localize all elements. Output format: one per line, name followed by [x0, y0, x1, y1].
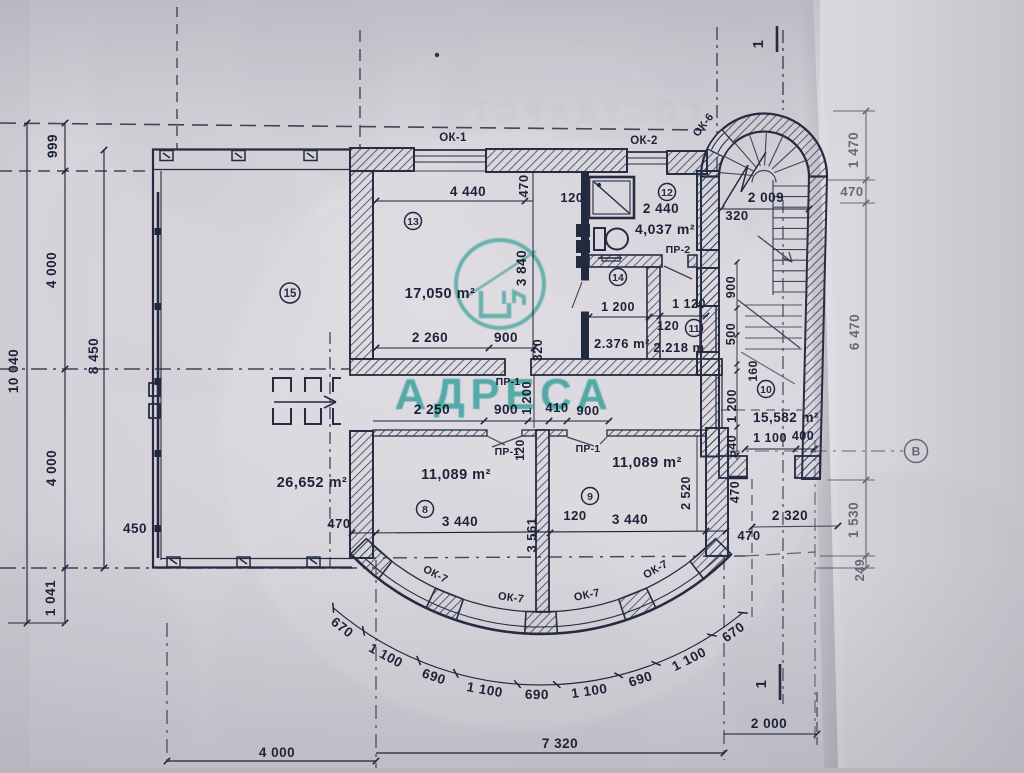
svg-text:120: 120 — [563, 508, 586, 523]
svg-text:470: 470 — [840, 184, 863, 199]
svg-text:11: 11 — [688, 323, 699, 335]
svg-text:320: 320 — [725, 208, 748, 223]
svg-text:4 000: 4 000 — [44, 252, 59, 288]
svg-text:1 470: 1 470 — [846, 132, 861, 168]
svg-text:3 440: 3 440 — [612, 512, 648, 527]
svg-text:1 200: 1 200 — [601, 300, 635, 314]
svg-text:249: 249 — [853, 559, 867, 581]
svg-text:2 440: 2 440 — [643, 201, 679, 216]
svg-text:470: 470 — [516, 174, 531, 197]
svg-text:7 320: 7 320 — [542, 736, 578, 751]
svg-text:2 260: 2 260 — [412, 330, 448, 345]
svg-text:8 450: 8 450 — [86, 338, 101, 374]
svg-text:9: 9 — [587, 491, 593, 503]
svg-text:470: 470 — [327, 516, 350, 531]
svg-text:120: 120 — [657, 319, 679, 333]
svg-text:500: 500 — [724, 323, 738, 345]
svg-text:26,652 m²: 26,652 m² — [277, 475, 348, 491]
svg-text:1 100: 1 100 — [753, 431, 787, 445]
svg-text:14: 14 — [612, 272, 624, 284]
svg-text:10: 10 — [760, 384, 772, 396]
svg-text:15,582 m²: 15,582 m² — [753, 410, 819, 425]
svg-text:470: 470 — [728, 481, 742, 503]
svg-text:ГОСУДАРСТ: ГОСУДАРСТ — [466, 96, 700, 129]
svg-text:120: 120 — [513, 439, 527, 461]
svg-text:2.376 m²: 2.376 m² — [594, 336, 650, 351]
svg-text:999: 999 — [45, 134, 60, 158]
svg-text:11,089 m²: 11,089 m² — [421, 467, 491, 483]
svg-text:470: 470 — [737, 528, 760, 543]
svg-text:3 840: 3 840 — [514, 250, 529, 286]
svg-text:120: 120 — [560, 190, 583, 205]
svg-text:3 561: 3 561 — [524, 517, 539, 552]
svg-text:15: 15 — [284, 288, 297, 300]
svg-text:6 470: 6 470 — [847, 314, 862, 350]
svg-text:400: 400 — [792, 429, 814, 443]
svg-text:10 040: 10 040 — [6, 349, 21, 393]
svg-text:2 009: 2 009 — [748, 190, 784, 205]
svg-text:ОК-1: ОК-1 — [439, 132, 467, 144]
svg-text:900: 900 — [724, 276, 738, 298]
svg-text:13: 13 — [407, 216, 419, 228]
svg-text:ПР-2: ПР-2 — [666, 244, 691, 256]
svg-text:пеатного: пеатного — [618, 76, 700, 91]
svg-text:2.218 m: 2.218 m — [653, 340, 704, 355]
svg-text:4,037 m²: 4,037 m² — [635, 221, 695, 237]
svg-text:4 000: 4 000 — [259, 745, 295, 760]
svg-text:160: 160 — [746, 360, 760, 382]
svg-text:17,050 m²: 17,050 m² — [405, 286, 476, 302]
svg-text:ПР-1: ПР-1 — [576, 443, 601, 455]
svg-text:В: В — [912, 445, 921, 459]
svg-text:1 200: 1 200 — [725, 389, 739, 423]
svg-text:8: 8 — [422, 504, 428, 516]
svg-text:1: 1 — [753, 680, 770, 689]
svg-text:4 000: 4 000 — [44, 450, 59, 486]
svg-text:1 120: 1 120 — [672, 297, 706, 311]
svg-text:2 320: 2 320 — [772, 508, 808, 523]
svg-text:АДРЕСА: АДРЕСА — [395, 370, 614, 419]
svg-text:2 520: 2 520 — [679, 476, 693, 510]
svg-text:1 530: 1 530 — [846, 502, 861, 538]
svg-text:4 440: 4 440 — [450, 184, 486, 199]
svg-text:450: 450 — [123, 521, 147, 536]
svg-text:ОК-2: ОК-2 — [630, 135, 657, 147]
svg-text:640: 640 — [725, 435, 739, 457]
svg-text:2 000: 2 000 — [751, 716, 787, 731]
svg-text:1 041: 1 041 — [43, 580, 58, 616]
svg-text:11,089 m²: 11,089 m² — [612, 455, 682, 471]
svg-text:3 440: 3 440 — [442, 514, 478, 529]
svg-text:690: 690 — [525, 687, 549, 702]
svg-text:900: 900 — [494, 330, 518, 345]
svg-text:12: 12 — [661, 187, 673, 199]
svg-text:1: 1 — [750, 40, 767, 49]
